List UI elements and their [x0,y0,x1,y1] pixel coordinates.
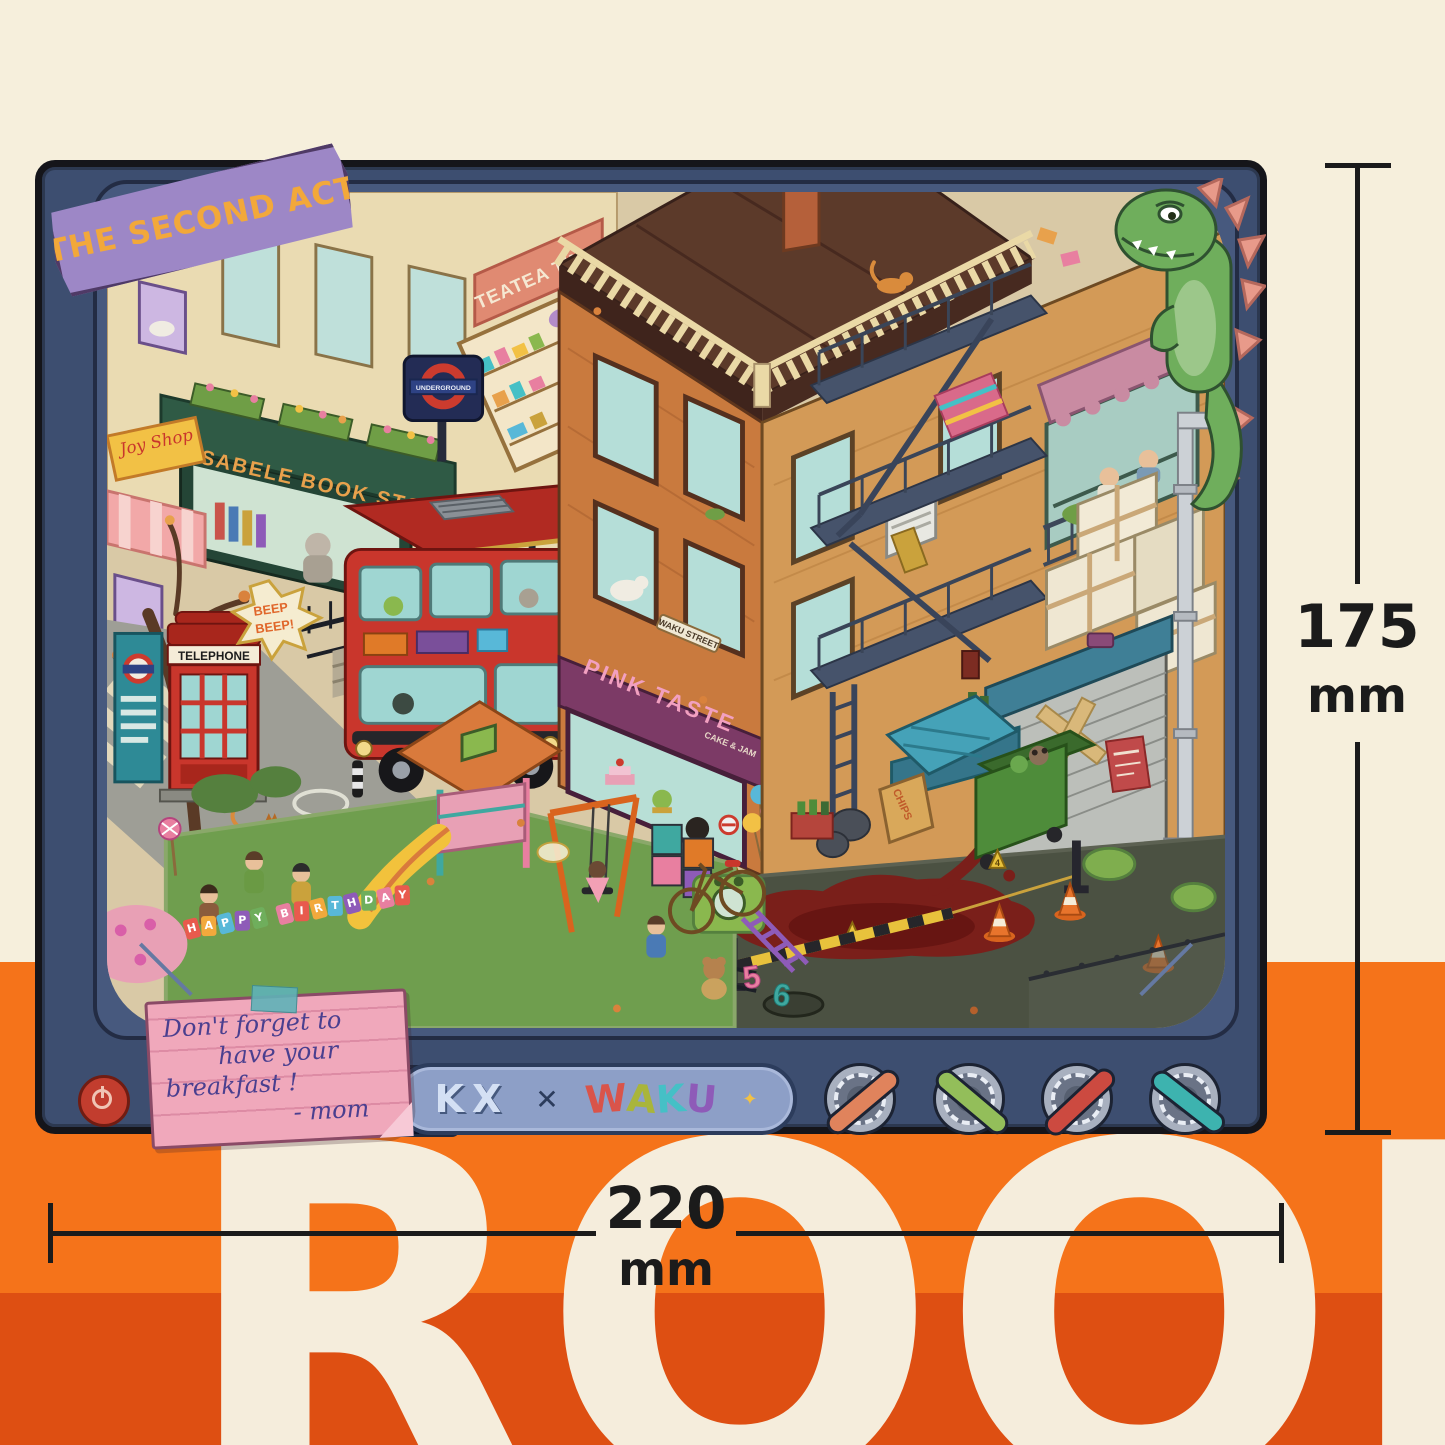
sparkle-icon: ✦ [742,1089,757,1110]
marker-4: 4 [995,858,1000,868]
sticky-note: Don't forget to have your breakfast ! - … [144,988,413,1150]
width-dim-cap-right [1279,1203,1284,1263]
power-icon [92,1089,112,1109]
collab-x-icon: ✕ [535,1083,558,1116]
height-unit: mm [1290,668,1424,724]
brand-kx: KX [435,1077,510,1121]
width-dim-line-right [736,1231,1282,1236]
height-dim-cap-bottom [1325,1130,1391,1135]
width-dim-line-left [50,1231,596,1236]
height-dim-line-bottom [1355,742,1360,1132]
tv-knob-2 [933,1063,1005,1135]
height-value: 175 [1290,592,1424,662]
room-headline: ROOM [178,1085,1445,1445]
brand-plate: KX ✕ WAKU ✦ [395,1063,797,1135]
height-dim-line-top [1355,166,1360,584]
underground-sign-text: UNDERGROUND [416,385,471,392]
product-image: ROOM 175 mm 220 mm [0,0,1445,1445]
tv-knob-1 [824,1063,896,1135]
width-unit: mm [596,1242,736,1296]
telephone-sign-text: TELEPHONE [178,650,250,663]
brand-waku: WAKU [585,1077,717,1121]
power-button [78,1075,130,1127]
tv-knob-3 [1041,1063,1113,1135]
width-dim-cap-left [48,1203,53,1263]
width-value: 220 [596,1174,736,1242]
retro-tv-frame: ISABELE BOOK STORE 87 Joy Shop [35,160,1267,1134]
height-dim-cap-top [1325,163,1391,168]
tv-knob-4 [1149,1063,1221,1135]
dinosaur-plush [1114,178,1266,526]
